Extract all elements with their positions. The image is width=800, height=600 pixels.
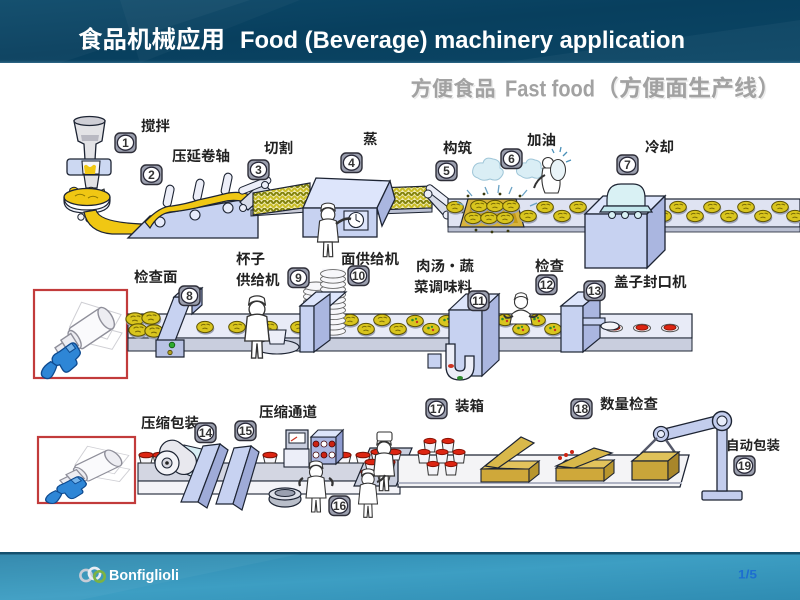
svg-text:1/5: 1/5 — [738, 568, 757, 582]
svg-text:5: 5 — [443, 164, 450, 178]
svg-text:4: 4 — [348, 156, 355, 170]
svg-text:17: 17 — [430, 402, 444, 416]
svg-text:10: 10 — [352, 269, 366, 283]
svg-text:16: 16 — [333, 499, 347, 513]
svg-text:3: 3 — [255, 163, 262, 177]
svg-text:2: 2 — [148, 168, 155, 182]
svg-text:7: 7 — [624, 158, 631, 172]
svg-text:Fast food: Fast food — [505, 76, 595, 102]
svg-text:9: 9 — [295, 271, 302, 285]
svg-text:6: 6 — [508, 152, 515, 166]
svg-text:19: 19 — [738, 459, 752, 473]
svg-text:Food (Beverage) machinery appl: Food (Beverage) machinery application — [240, 27, 685, 54]
svg-text:Bonfiglioli: Bonfiglioli — [109, 568, 179, 584]
svg-text:11: 11 — [472, 294, 485, 308]
svg-text:15: 15 — [239, 424, 253, 438]
svg-text:13: 13 — [588, 284, 602, 298]
svg-text:14: 14 — [199, 426, 213, 440]
svg-text:1: 1 — [122, 136, 129, 150]
svg-text:18: 18 — [575, 402, 589, 416]
svg-text:12: 12 — [540, 278, 554, 292]
svg-text:8: 8 — [186, 289, 193, 303]
